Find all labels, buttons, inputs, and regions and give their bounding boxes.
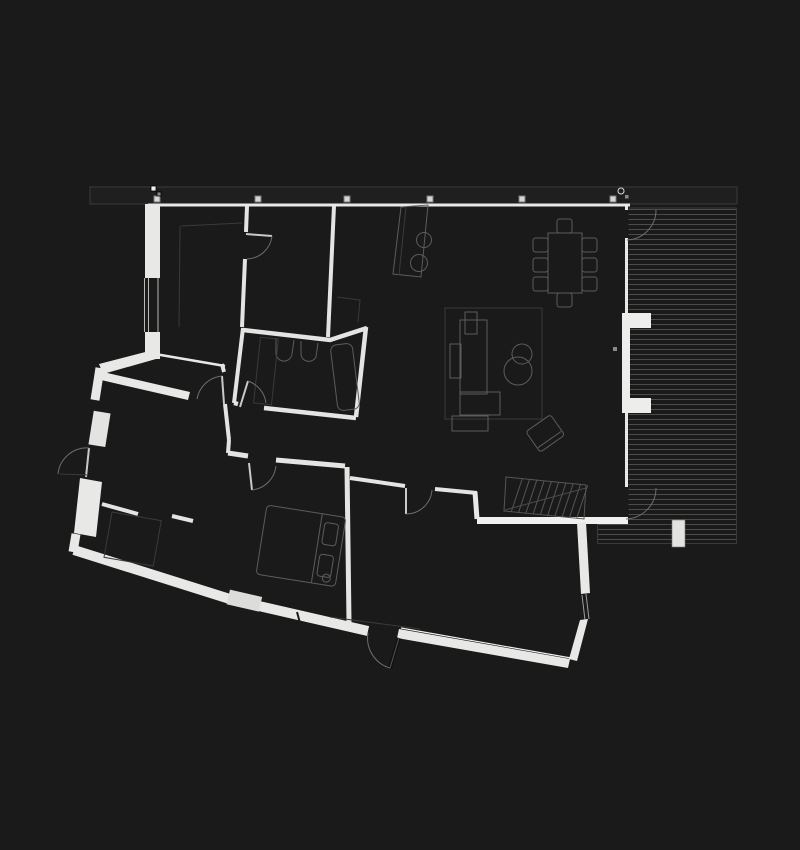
- roof-column-marker: [255, 196, 261, 202]
- living-south-wall: [477, 517, 628, 524]
- deck-pillar: [672, 520, 685, 547]
- floor-plan-canvas: [0, 0, 800, 850]
- bedroom-right-wall: [347, 467, 349, 622]
- roof-column-marker: [154, 196, 160, 202]
- floor-plan-drawing: [0, 0, 800, 850]
- roof-column-marker: [519, 196, 525, 202]
- roof-overhang: [90, 187, 737, 204]
- roof-column-marker: [610, 196, 616, 202]
- roof-column-marker: [427, 196, 433, 202]
- roof-column-marker: [344, 196, 350, 202]
- wall-marker: [613, 347, 617, 351]
